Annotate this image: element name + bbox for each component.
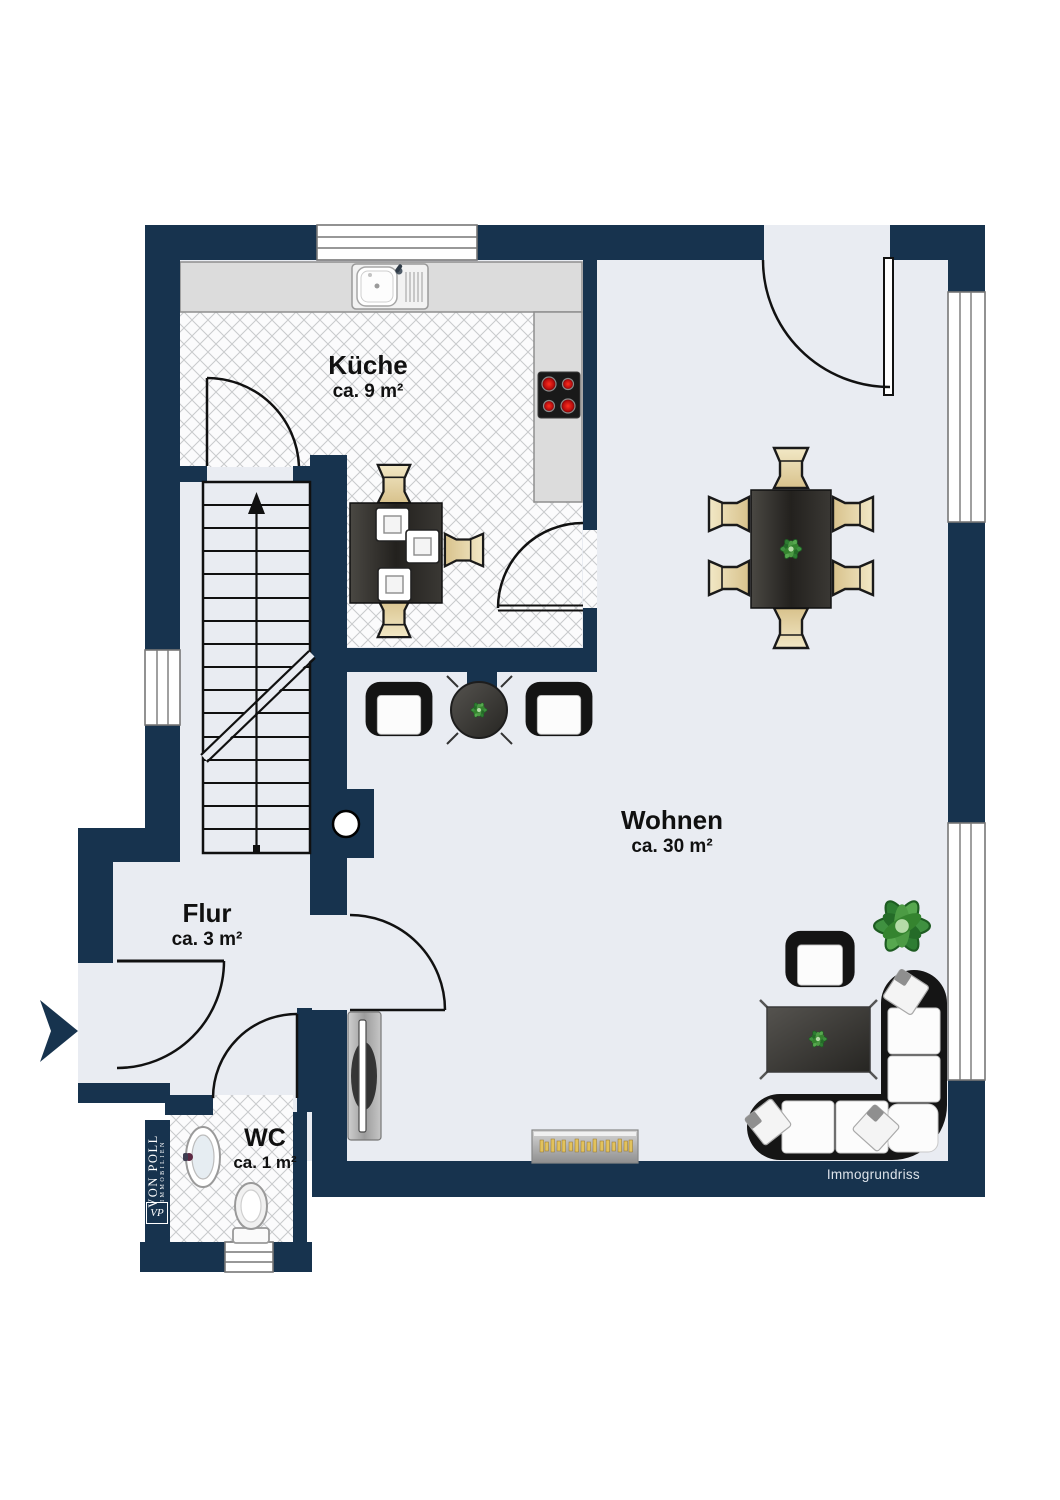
kitchen-sink [352,264,428,309]
wall-segment [583,260,597,530]
wall-segment [140,1242,225,1272]
tv-sideboard [348,1012,381,1140]
chimney-symbol [333,811,359,837]
window-living-lower [948,823,985,1080]
wall-segment [78,1083,170,1103]
wall-segment [312,1010,347,1161]
window-wc [225,1242,273,1272]
wall-segment [948,225,985,292]
wall-segment [165,1095,213,1115]
kitchen-chair [378,599,410,637]
tv-screen [359,1020,366,1132]
window-living-upper [948,292,985,522]
wall-segment [293,1112,307,1242]
kitchen-chair [378,465,410,503]
window-stairs [145,650,180,725]
immogrundriss-watermark: Immogrundriss [760,1167,920,1182]
wall-segment [948,522,985,823]
nook-armchair [366,682,433,736]
wall-segment [145,225,180,650]
staircase [201,482,315,853]
vp-monogram-logo: VP [146,1202,168,1224]
floorplan-drawing [0,0,1060,1500]
window-kitchen [317,225,477,260]
brand-name: VON POLL [147,1134,160,1207]
dining-chair [709,497,749,531]
floorplan-canvas: Küche ca. 9 m² Wohnen ca. 30 m² Flur ca.… [0,0,1060,1500]
wall-segment [477,225,764,260]
lounge-armchair [785,931,854,987]
nook-armchair [526,682,593,736]
wall-segment [583,608,597,648]
entrance-arrow-icon [40,1000,78,1062]
wall-segment [112,828,180,862]
wall-segment [347,648,597,672]
piano-sideboard [532,1130,638,1163]
sitting-nook [366,676,593,744]
dining-chair [833,561,873,595]
toilet [233,1183,269,1243]
wall-segment [178,466,207,482]
kitchen-chair [445,534,483,566]
brand-subtitle: IMMOBILIEN [160,1140,168,1202]
dining-chair [774,448,808,488]
dining-chair [833,497,873,531]
wall-segment [145,725,180,828]
dining-chair [774,608,808,648]
dining-chair [709,561,749,595]
wall-segment [293,466,310,482]
wall-segment [273,1242,312,1272]
stair-start-marker [253,845,260,852]
wall-segment [297,1008,312,1112]
wall-segment [310,455,347,915]
stove-cooktop [538,372,580,418]
wall-segment [78,828,113,963]
